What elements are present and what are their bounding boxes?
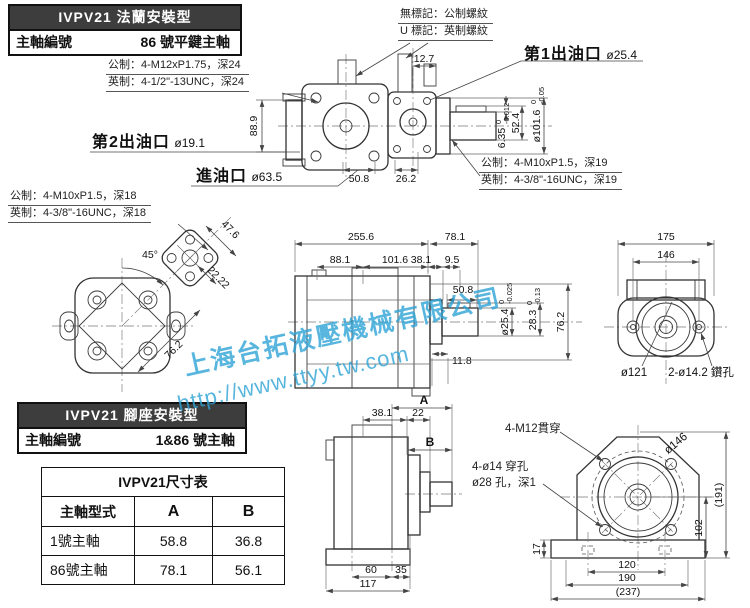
dim-22: 22 (412, 407, 424, 419)
svg-text:76.2: 76.2 (555, 312, 567, 333)
flange-thread-inch: 英制：4-1/2"-13UNC，深24 (106, 75, 249, 92)
rear-thread-note: 公制：4-M10xP1.5，深18 英制：4-3/8"-16UNC，深18 (8, 189, 151, 223)
flange-shaft-value: 86 號平鍵主軸 (141, 32, 230, 52)
row1-a: 58.8 (135, 527, 213, 556)
foot-title-block: IVPV21 腳座安裝型 主軸編號 1&86 號主軸 (17, 402, 247, 454)
col-a: A (135, 497, 213, 527)
thread-note-metric: 無標記：公制螺紋 (398, 7, 493, 24)
svg-text:ø101.6: ø101.6 (531, 110, 543, 143)
size-table-header-row: 主軸型式 A B (42, 497, 285, 527)
dim-120: 120 (618, 559, 636, 571)
row1-name: 1號主軸 (42, 527, 135, 556)
dim-17: 17 (531, 543, 543, 555)
foot-shaft-label: 主軸編號 (25, 430, 81, 450)
dim-11-8: 11.8 (452, 355, 472, 367)
dim-76-2-side: 76.2 (555, 312, 567, 333)
dim-52-4: 52.4 (510, 113, 522, 134)
svg-text:47.6: 47.6 (219, 218, 242, 241)
rear-thread-metric: 公制：4-M10xP1.5，深18 (8, 189, 151, 206)
foot-shaft-value: 1&86 號主軸 (156, 430, 235, 450)
label-2-o14-2: 2-ø14.2 鑽孔 (668, 365, 734, 379)
outlet-thread-note: 公制：4-M10xP1.5，深19 英制：4-3/8"-16UNC，深19 (479, 156, 622, 190)
svg-text:52.4: 52.4 (510, 113, 522, 134)
dim-78-1: 78.1 (445, 231, 466, 243)
row2-a: 78.1 (135, 556, 213, 585)
dim-B: B (426, 435, 435, 449)
dim-45deg: 45° (142, 249, 158, 261)
dim-47-6: 47.6 (219, 218, 242, 241)
dim-255-6: 255.6 (348, 231, 374, 243)
dim-190: 190 (618, 572, 636, 584)
dim-9-5: 9.5 (445, 254, 460, 266)
table-row: 86號主軸 78.1 56.1 (42, 556, 285, 585)
dim-101-6: ø101.6 0 -0.05 (529, 87, 546, 142)
dim-60: 60 (365, 564, 377, 576)
foot-front-view: 102 (191) 17 120 190 (237) ø146 (531, 425, 730, 601)
foot-title: IVPV21 腳座安裝型 (19, 404, 245, 429)
foot-side-view: A 38.1 22 B 60 35 117 (326, 393, 462, 591)
outlet-thread-metric: 公制：4-M10xP1.5，深19 (479, 156, 622, 173)
dim-146: 146 (657, 249, 675, 261)
counterbore-label: ø28 孔，深1 (472, 474, 536, 490)
svg-text:88.9: 88.9 (248, 116, 260, 137)
svg-text:-0.05: -0.05 (537, 87, 546, 104)
dim-101-6b: 101.6 (382, 254, 408, 266)
svg-text:28.3: 28.3 (527, 310, 539, 331)
dim-237: (237) (616, 586, 641, 598)
rear-thread-inch: 英制：4-3/8"-16UNC，深18 (8, 206, 151, 223)
flange-thread-note: 公制：4-M12xP1.75，深24 英制：4-1/2"-13UNC，深24 (106, 58, 249, 92)
dim-38-1: 38.1 (411, 254, 432, 266)
dim-117: 117 (360, 578, 377, 590)
svg-text:17: 17 (531, 543, 543, 555)
svg-text:102: 102 (693, 519, 705, 537)
outlet-thread-inch: 英制：4-3/8"-16UNC，深19 (479, 173, 622, 190)
bolt-through-label: 4-M12貫穿 (505, 420, 561, 436)
table-row: 1號主軸 58.8 36.8 (42, 527, 285, 556)
svg-text:22.22: 22.22 (205, 264, 232, 291)
flange-thread-metric: 公制：4-M12xP1.75，深24 (106, 58, 249, 75)
dim-25-4: ø25.4 0 -0.025 (497, 283, 514, 336)
svg-text:ø25.4: ø25.4 (499, 308, 511, 335)
flange-shaft-row: 主軸編號 86 號平鍵主軸 (10, 31, 240, 54)
dim-28-3: 28.3 0 -0.13 (525, 288, 542, 330)
svg-text:-0.025: -0.025 (505, 283, 514, 304)
flange-shaft-label: 主軸編號 (16, 32, 72, 52)
dim-76-2-rear: 76.2 (162, 338, 185, 361)
flange-face-view: 175 146 ø121 2-ø14.2 鑽孔 (604, 231, 734, 384)
flange-title: IVPV21 法蘭安裝型 (10, 6, 240, 31)
row2-name: 86號主軸 (42, 556, 135, 585)
dim-175: 175 (657, 231, 675, 243)
svg-text:-0.13: -0.13 (533, 288, 542, 305)
flange-title-block: IVPV21 法蘭安裝型 主軸編號 86 號平鍵主軸 (8, 4, 242, 56)
dim-A: A (420, 393, 429, 407)
dim-26-2: 26.2 (396, 173, 417, 185)
row1-b: 36.8 (213, 527, 285, 556)
dim-102: 102 (693, 519, 705, 537)
rear-view: 45° 47.6 22.22 76.2 (52, 216, 242, 392)
dim-38-1-foot: 38.1 (372, 407, 393, 419)
thread-note-inch: U 標記：英制螺紋 (398, 24, 493, 41)
row2-b: 56.1 (213, 556, 285, 585)
outlet1-label: 第1出油口 ø25.4 (524, 40, 637, 64)
foot-shaft-row: 主軸編號 1&86 號主軸 (19, 429, 245, 452)
inlet-label: 進油口 ø63.5 (196, 162, 282, 186)
col-shaft-type: 主軸型式 (42, 497, 135, 527)
size-table-title-row: IVPV21尺寸表 (42, 468, 285, 497)
thread-marking-note: 無標記：公制螺紋 U 標記：英制螺紋 (398, 7, 493, 41)
through-hole-label: 4-ø14 穿孔 (472, 458, 528, 474)
drawing-sheet: 12.7 88.9 50.8 26.2 6.35 0 -0.012 52.4 ø… (0, 0, 750, 608)
outlet2-label: 第2出油口 ø19.1 (92, 128, 205, 152)
dim-35: 35 (395, 564, 407, 576)
size-table: IVPV21尺寸表 主軸型式 A B 1號主軸 58.8 36.8 86號主軸 … (41, 467, 285, 585)
svg-text:6.35: 6.35 (496, 128, 508, 149)
dim-88-9: 88.9 (248, 116, 260, 137)
svg-text:(191): (191) (713, 483, 725, 508)
col-b: B (213, 497, 285, 527)
dim-22-22: 22.22 (205, 264, 232, 291)
label-o121: ø121 (621, 367, 647, 379)
dim-88-1: 88.1 (330, 254, 351, 266)
svg-text:76.2: 76.2 (162, 338, 185, 361)
dim-50-8-side: 50.8 (453, 284, 474, 296)
size-table-title: IVPV21尺寸表 (42, 468, 285, 497)
dim-12-7: 12.7 (414, 53, 435, 65)
dim-191: (191) (713, 483, 725, 508)
side-view: 255.6 78.1 88.1 101.6 38.1 9.5 50.8 11.8… (288, 231, 582, 396)
